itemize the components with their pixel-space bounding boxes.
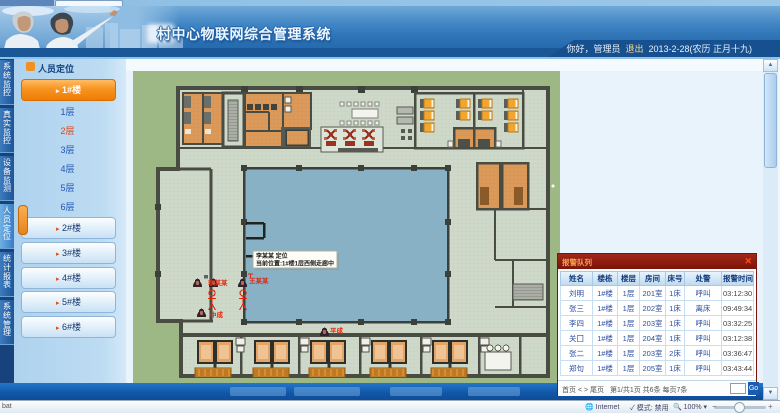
svg-text:王某某: 王某某: [249, 276, 269, 285]
svg-text:平成: 平成: [330, 326, 344, 335]
svg-text:李某某 定位: 李某某 定位: [255, 252, 288, 260]
svg-text:当前位置:1#楼1层西侧走廊中: 当前位置:1#楼1层西侧走廊中: [256, 260, 334, 268]
svg-text:李某某: 李某某: [207, 278, 228, 287]
svg-text:中成: 中成: [210, 310, 224, 319]
